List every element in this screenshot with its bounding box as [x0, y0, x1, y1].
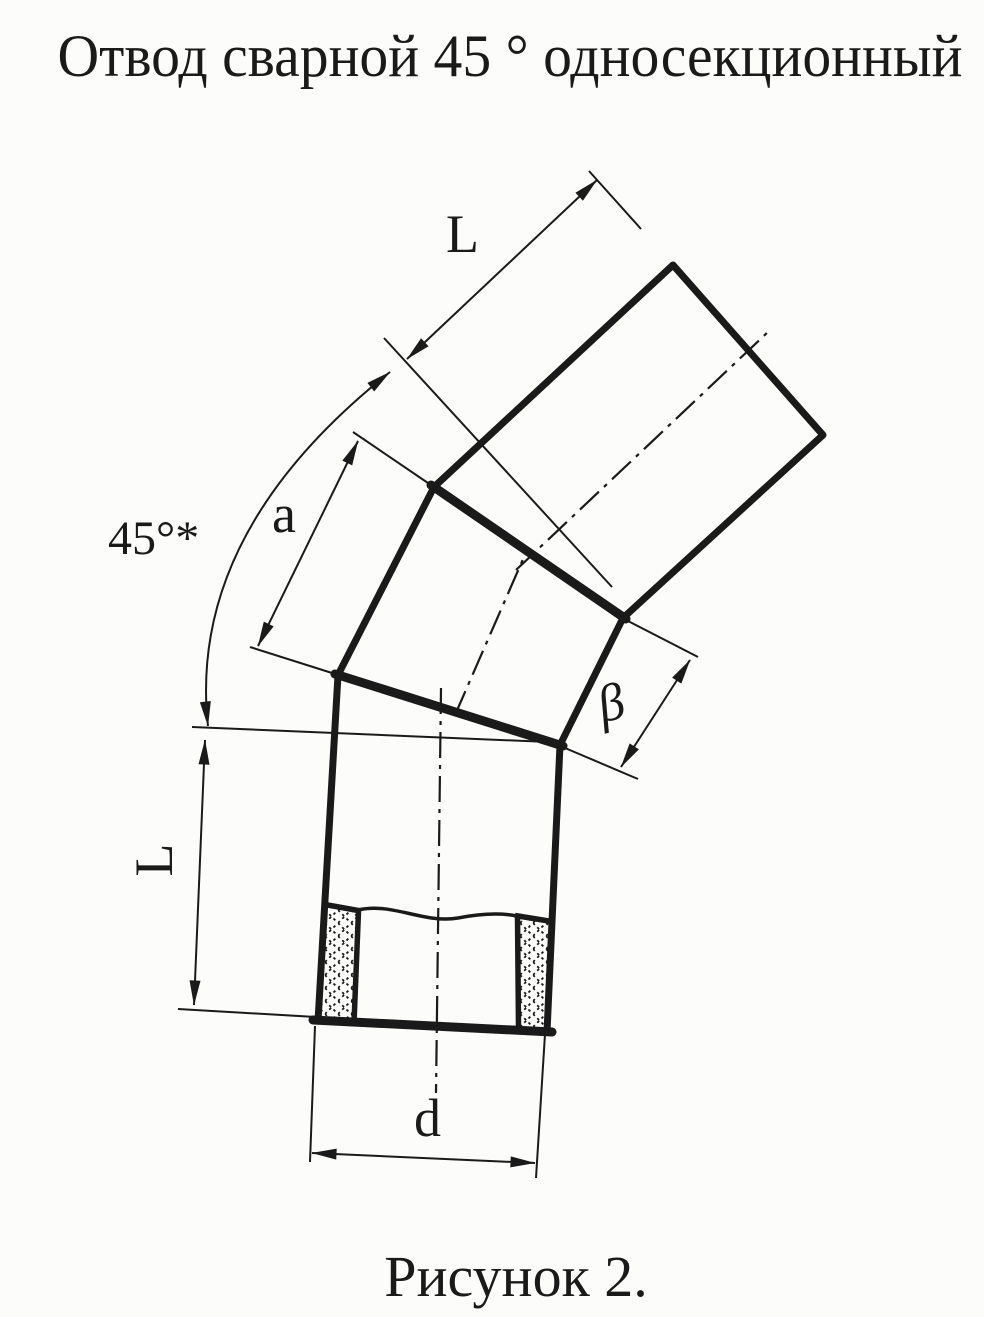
dimension-L-top: L: [384, 171, 641, 587]
right-wall-section-hatch: [517, 916, 553, 1030]
right-hatch-inner-edge: [518, 916, 519, 1027]
extension-line: [384, 338, 612, 587]
middle-miter-section: [338, 487, 623, 745]
extension-line: [589, 171, 641, 229]
top-segment-centerline: [516, 331, 769, 570]
dimension-d: d: [310, 1026, 545, 1178]
extension-line: [250, 647, 332, 673]
scanned-page: Отвод сварной 45 ° односекционный: [0, 0, 984, 1317]
extension-line: [536, 1034, 545, 1178]
figure-caption: Рисунок 2.: [384, 1244, 648, 1309]
dim-label-d: d: [414, 1088, 441, 1148]
angle-label: 45°*: [108, 512, 199, 565]
extension-line: [628, 621, 698, 657]
dimension-bend-angle: 45°*: [108, 372, 390, 726]
extension-line: [565, 748, 638, 779]
pipe-outline: [313, 265, 823, 1032]
dim-label-a: a: [272, 484, 296, 544]
elbow-figure-drawing: Отвод сварной 45 ° односекционный: [0, 0, 984, 1317]
angle-arc: [206, 372, 390, 726]
dimension-line: [407, 180, 597, 359]
extension-line: [310, 1026, 315, 1162]
extension-line: [353, 432, 428, 483]
middle-section-centerline: [455, 550, 527, 715]
figure-title: Отвод сварной 45 ° односекционный: [58, 23, 963, 89]
dimension-line: [194, 740, 205, 1005]
dim-label-L-top: L: [446, 204, 479, 264]
top-pipe-segment: [434, 265, 823, 618]
dimension-line: [621, 660, 690, 767]
dim-label-beta: β: [590, 673, 631, 735]
dim-label-L-bottom: L: [124, 844, 184, 877]
bottom-segment-centerline: [436, 688, 441, 1093]
dimension-line: [312, 1153, 535, 1163]
upper-weld-seam: [431, 485, 626, 619]
extension-line: [178, 1009, 333, 1018]
